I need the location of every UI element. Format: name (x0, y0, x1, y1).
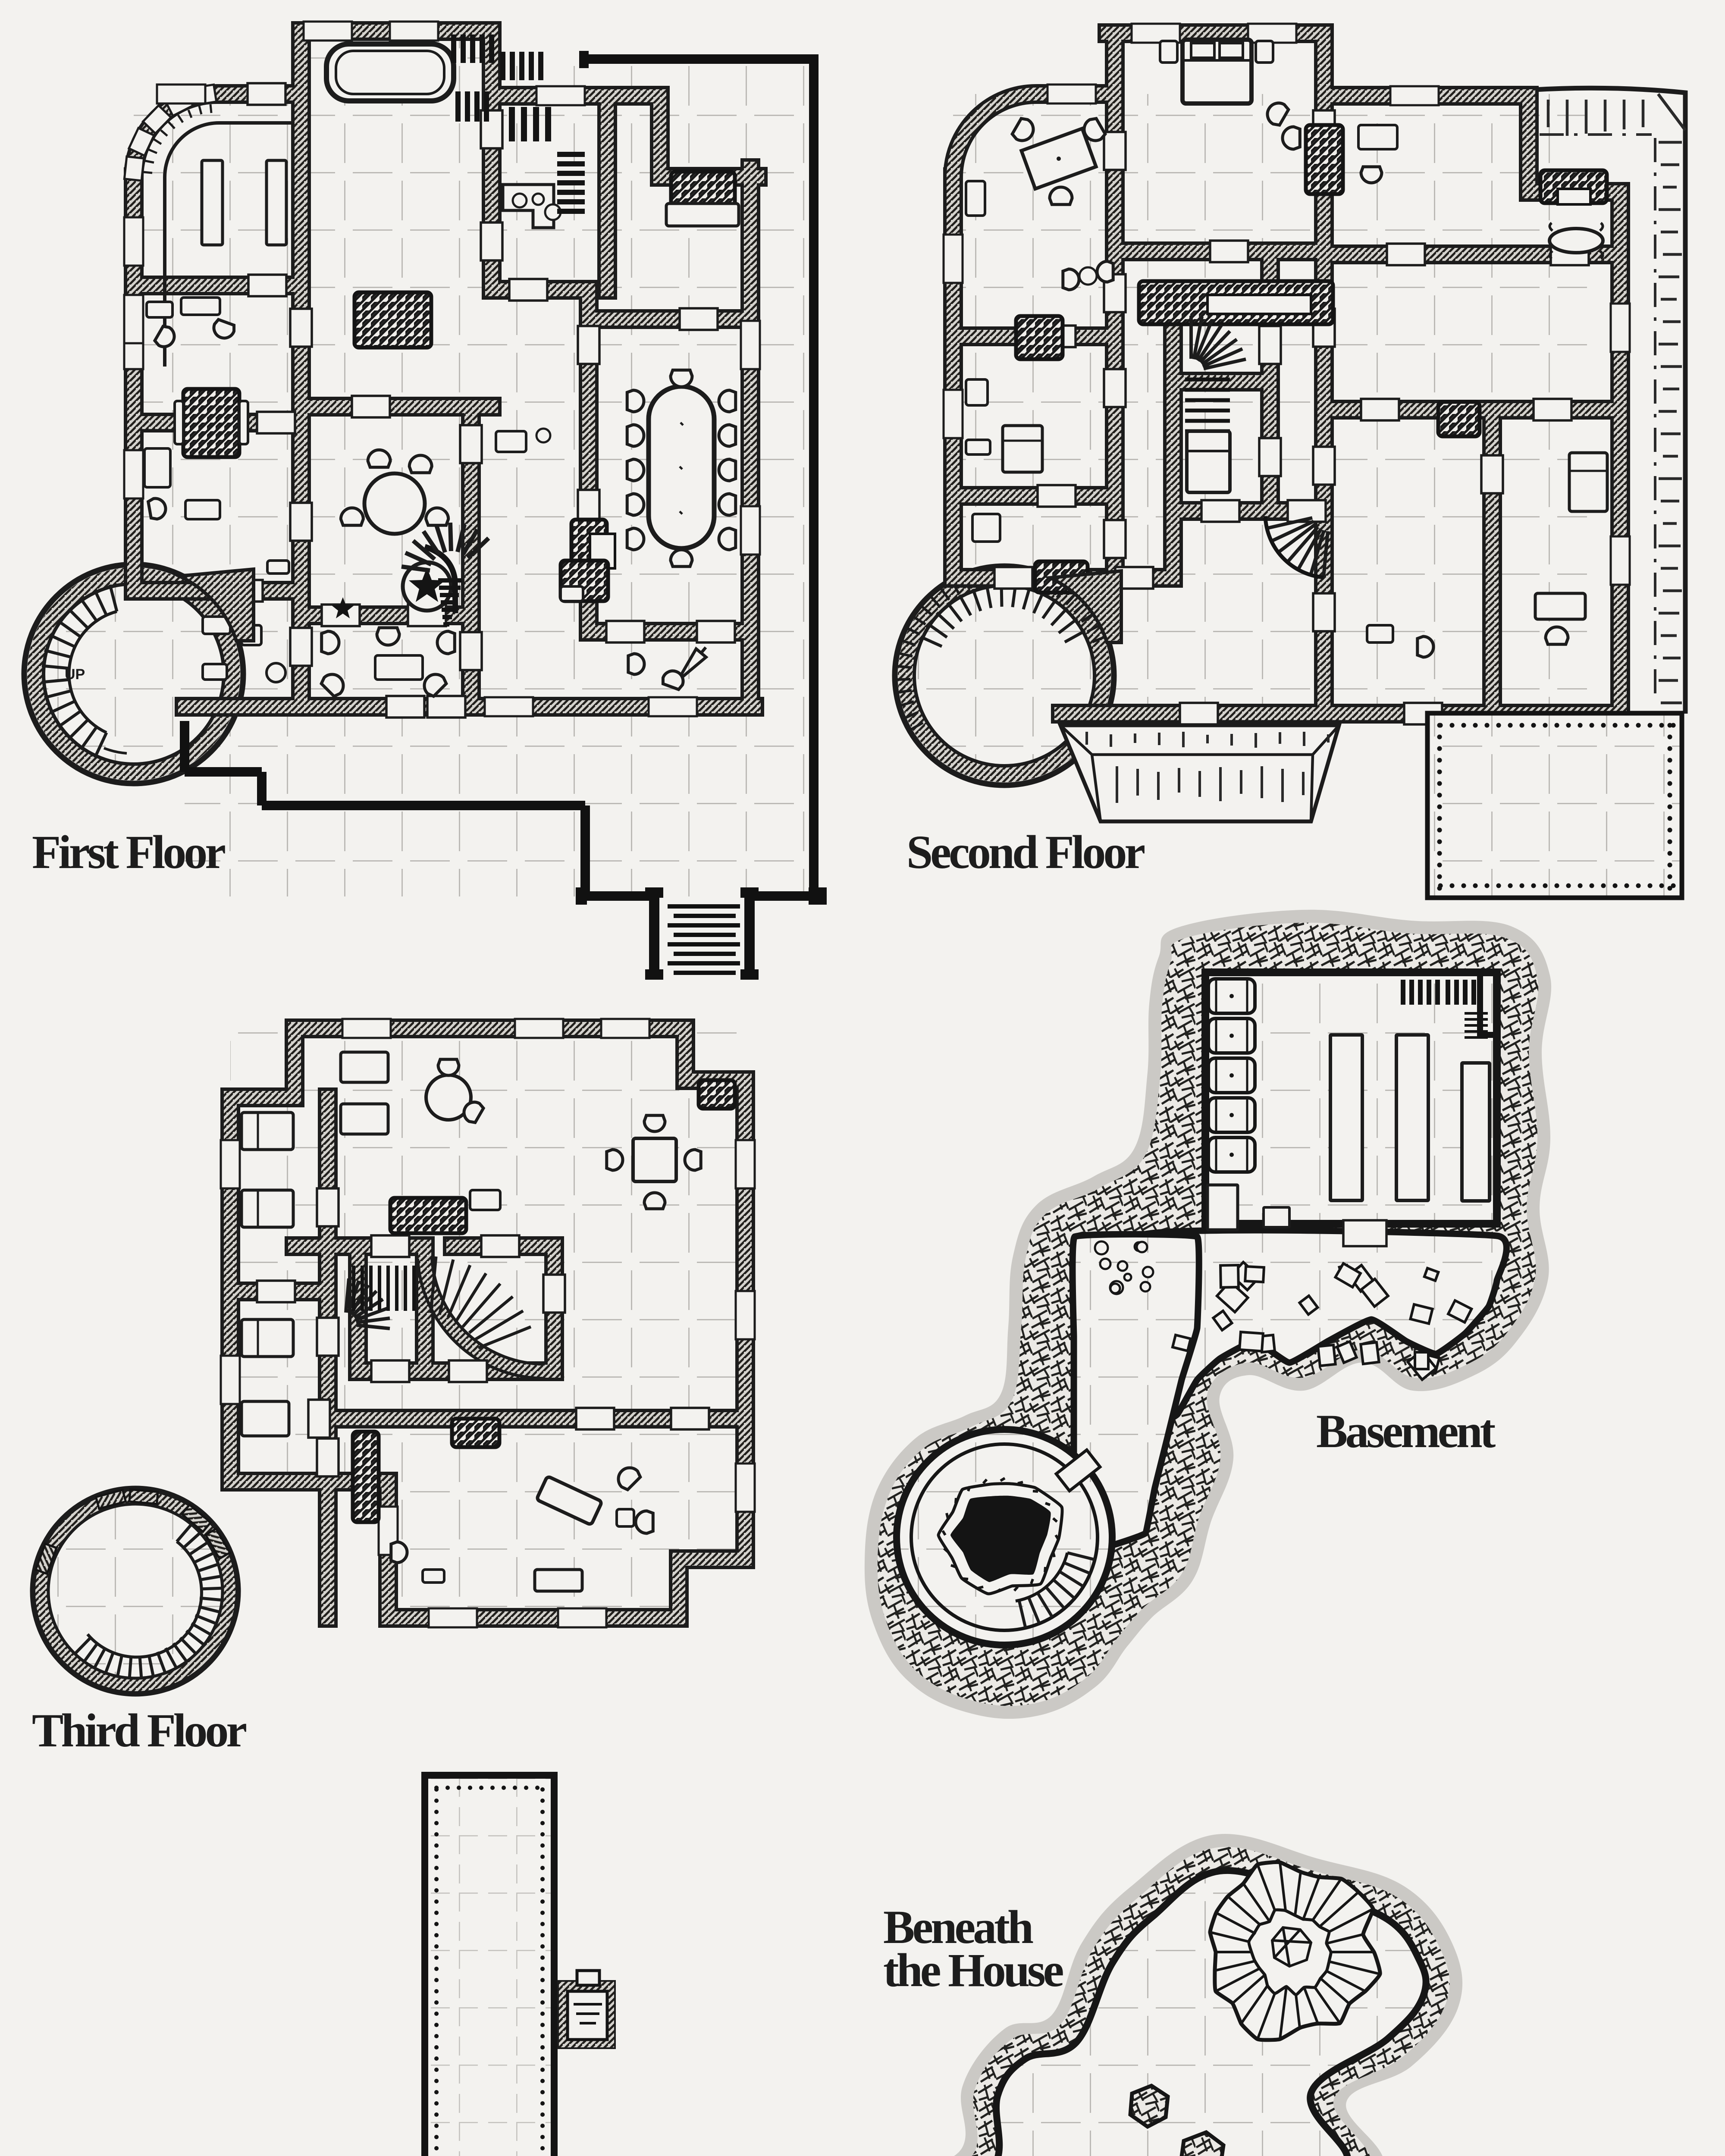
svg-text:Third Floor: Third Floor (32, 1704, 246, 1757)
svg-text:First Floor: First Floor (32, 826, 225, 878)
svg-text:Basement: Basement (1316, 1405, 1496, 1457)
svg-text:UP: UP (65, 666, 85, 683)
svg-text:the House: the House (883, 1944, 1063, 1996)
svg-text:Second Floor: Second Floor (906, 826, 1145, 878)
